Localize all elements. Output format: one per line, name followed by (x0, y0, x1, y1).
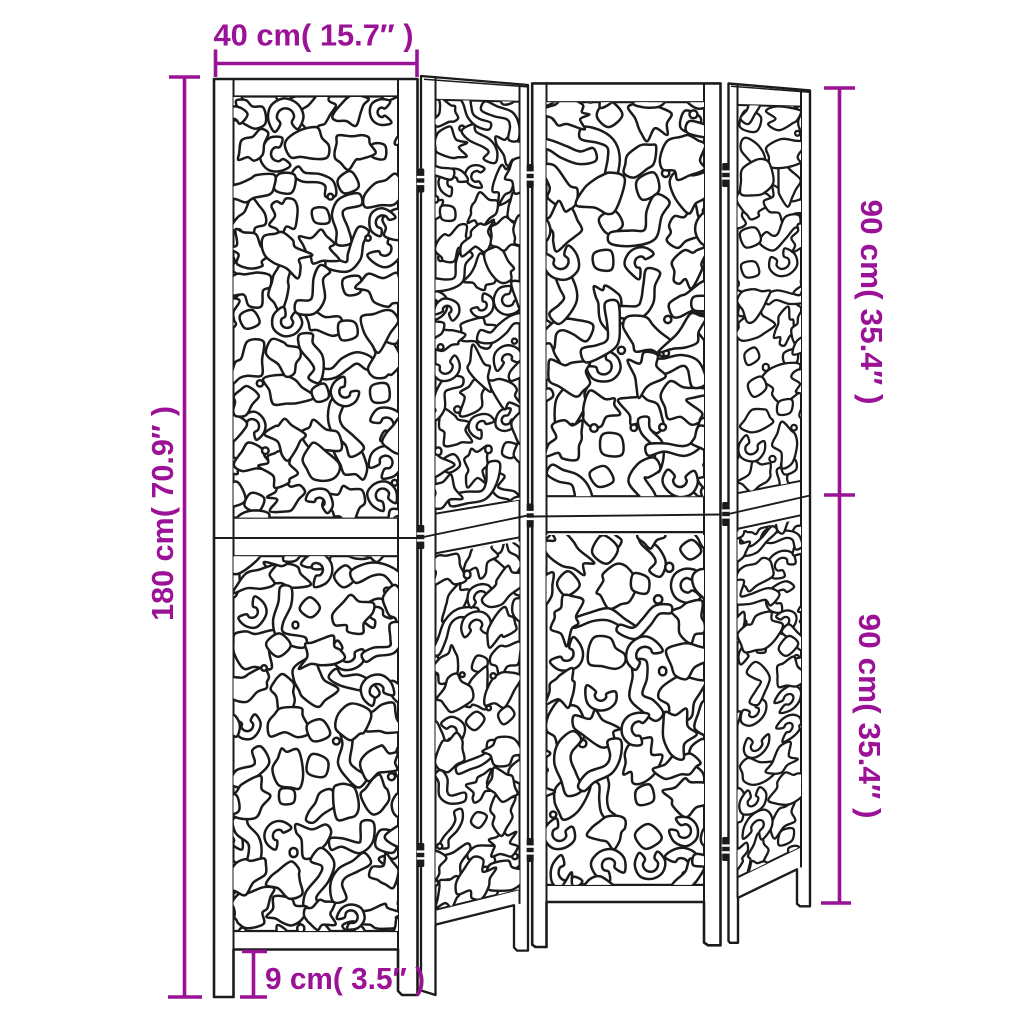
svg-text:90 cm( 35.4″ ): 90 cm( 35.4″ ) (852, 614, 887, 819)
svg-text:40 cm( 15.7″ ): 40 cm( 15.7″ ) (214, 18, 414, 53)
svg-text:9 cm( 3.5″ ): 9 cm( 3.5″ ) (265, 961, 425, 996)
svg-text:180 cm( 70.9″ ): 180 cm( 70.9″ ) (145, 406, 180, 621)
svg-text:90 cm( 35.4″ ): 90 cm( 35.4″ ) (854, 200, 889, 405)
